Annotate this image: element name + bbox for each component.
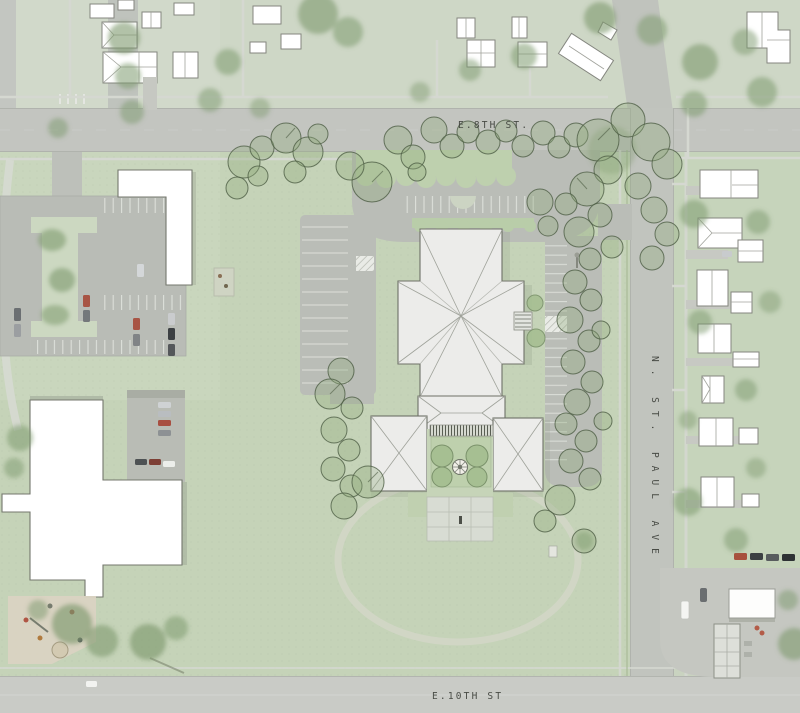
driveway bbox=[143, 77, 157, 110]
house bbox=[118, 0, 134, 10]
garage bbox=[731, 292, 752, 313]
van bbox=[681, 601, 689, 619]
planting-bed bbox=[432, 467, 452, 487]
shrub bbox=[527, 295, 543, 311]
house bbox=[702, 376, 724, 403]
site-plan-canvas: E.8TH ST. N. ST. PAUL AVE E.10TH ST bbox=[0, 0, 800, 713]
house bbox=[701, 477, 734, 507]
car bbox=[700, 588, 707, 602]
fuel-canopy bbox=[729, 589, 775, 618]
shed bbox=[742, 494, 759, 507]
east-entry-stair bbox=[514, 312, 532, 330]
house bbox=[253, 6, 281, 24]
planting-bed bbox=[431, 445, 453, 467]
street-e10th bbox=[0, 676, 800, 713]
house bbox=[700, 170, 758, 198]
building-front-hedge bbox=[412, 218, 534, 228]
house bbox=[174, 3, 194, 15]
minor-road-west bbox=[0, 0, 16, 112]
planting-bed bbox=[466, 445, 488, 467]
house bbox=[512, 17, 527, 38]
church-parking-lot bbox=[127, 390, 185, 482]
fuel-pump bbox=[744, 652, 752, 657]
house bbox=[250, 42, 266, 53]
house bbox=[173, 52, 198, 78]
store-building bbox=[714, 624, 740, 678]
planting-bed bbox=[467, 467, 487, 487]
street-label-e8th: E.8TH ST. bbox=[458, 120, 529, 131]
courtyard-fountain bbox=[453, 460, 468, 475]
house bbox=[281, 34, 301, 49]
garage bbox=[142, 12, 161, 28]
car-on-driveway bbox=[722, 251, 732, 257]
garage bbox=[739, 428, 758, 444]
street-label-n-st-paul: N. ST. PAUL AVE bbox=[649, 356, 660, 562]
car-on-road bbox=[86, 681, 97, 687]
sandbox-ring bbox=[52, 642, 68, 658]
street-label-e10th: E.10TH ST bbox=[432, 691, 503, 702]
garage bbox=[733, 352, 759, 367]
courtyard bbox=[427, 425, 493, 497]
utility-structure bbox=[214, 268, 234, 296]
shrub bbox=[527, 329, 545, 347]
pergola bbox=[430, 425, 493, 436]
gas-station bbox=[660, 553, 800, 678]
fuel-pump bbox=[744, 641, 752, 646]
site-plan-map: E.8TH ST. N. ST. PAUL AVE E.10TH ST bbox=[0, 0, 800, 713]
house bbox=[90, 4, 114, 18]
plaza-marker bbox=[459, 516, 462, 524]
house bbox=[697, 270, 728, 306]
